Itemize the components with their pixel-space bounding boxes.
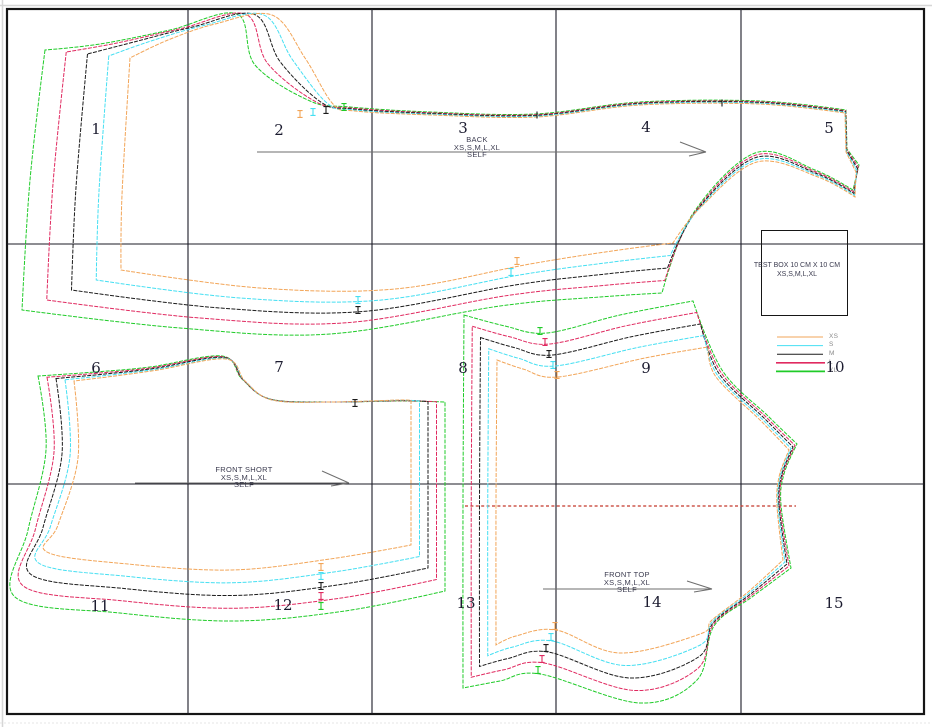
- tile-number-13: 13: [456, 594, 475, 612]
- tile-number-2: 2: [274, 121, 284, 139]
- tile-number-5: 5: [824, 119, 834, 137]
- piece-label-front-top: FRONT TOP XS,S,M,L,XL SELF: [604, 571, 650, 594]
- tile-number-15: 15: [824, 594, 843, 612]
- tile-number-9: 9: [641, 359, 651, 377]
- tile-number-4: 4: [641, 118, 651, 136]
- tile-number-3: 3: [458, 119, 468, 137]
- legend-label-S: S: [829, 342, 834, 349]
- legend-label-XS: XS: [829, 334, 838, 341]
- tile-number-11: 11: [90, 597, 109, 615]
- text-layer: BACK XS,S,M,L,XL SELF FRONT SHORT XS,S,M…: [0, 0, 932, 727]
- tile-number-10: 10: [825, 358, 844, 376]
- tile-number-12: 12: [273, 596, 292, 614]
- piece-label-back: BACK XS,S,M,L,XL SELF: [454, 136, 500, 159]
- test-box-line2: XS,S,M,L,XL: [754, 271, 840, 280]
- tile-number-14: 14: [642, 593, 661, 611]
- test-box-line1: TEST BOX 10 CM X 10 CM: [754, 262, 840, 271]
- tile-number-8: 8: [458, 359, 468, 377]
- pattern-plot-window: BACK XS,S,M,L,XL SELF FRONT SHORT XS,S,M…: [0, 0, 932, 727]
- piece-label-front-short: FRONT SHORT XS,S,M,L,XL SELF: [215, 466, 272, 489]
- piece-fabric: SELF: [454, 151, 500, 159]
- piece-fabric: SELF: [215, 481, 272, 489]
- tile-number-1: 1: [91, 120, 101, 138]
- tile-number-7: 7: [274, 358, 284, 376]
- legend-label-M: M: [829, 351, 835, 358]
- test-box-label: TEST BOX 10 CM X 10 CM XS,S,M,L,XL: [754, 262, 840, 279]
- tile-number-6: 6: [91, 359, 101, 377]
